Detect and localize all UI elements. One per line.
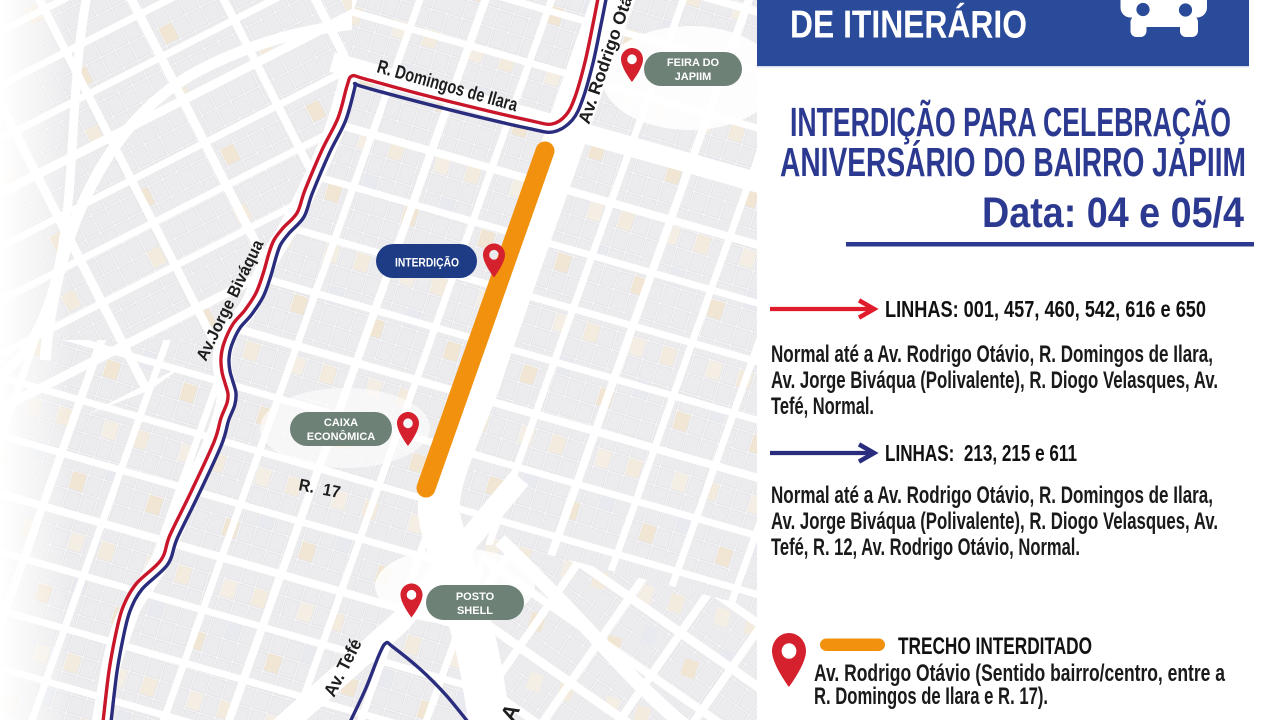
svg-text:ECONÔMICA: ECONÔMICA: [307, 430, 376, 443]
svg-text:ANIVERSÁRIO DO BAIRRO JAPIIM: ANIVERSÁRIO DO BAIRRO JAPIIM: [780, 139, 1246, 185]
svg-text:Tefé, R. 12, Av. Rodrigo Otávi: Tefé, R. 12, Av. Rodrigo Otávio, Normal.: [771, 534, 1080, 561]
svg-text:Normal até a Av. Rodrigo Otávi: Normal até a Av. Rodrigo Otávio, R. Domi…: [771, 341, 1213, 368]
svg-text:Av. Jorge Biváqua (Polivalente: Av. Jorge Biváqua (Polivalente), R. Diog…: [771, 367, 1218, 394]
svg-text:R. Domingos de Ilara e R. 17).: R. Domingos de Ilara e R. 17).: [814, 683, 1048, 710]
svg-text:JAPIIM: JAPIIM: [675, 71, 712, 83]
svg-text:TRECHO INTERDITADO: TRECHO INTERDITADO: [898, 633, 1092, 660]
svg-text:Av. Jorge Biváqua (Polivalente: Av. Jorge Biváqua (Polivalente), R. Diog…: [771, 508, 1218, 535]
svg-text:Tefé, Normal.: Tefé, Normal.: [771, 393, 874, 420]
svg-text:SHELL: SHELL: [457, 605, 493, 617]
svg-text:Data: 04 e 05/4: Data: 04 e 05/4: [982, 189, 1244, 237]
svg-text:LINHAS: 001, 457, 460, 542, 61: LINHAS: 001, 457, 460, 542, 616 e 650: [885, 296, 1206, 322]
svg-text:Normal até a Av. Rodrigo Otávi: Normal até a Av. Rodrigo Otávio, R. Domi…: [771, 482, 1213, 509]
svg-text:POSTO: POSTO: [456, 591, 495, 603]
svg-text:CAIXA: CAIXA: [324, 417, 358, 429]
svg-text:INTERDIÇÃO: INTERDIÇÃO: [395, 255, 459, 270]
svg-text:LINHAS: 213, 215 e 611: LINHAS: 213, 215 e 611: [885, 440, 1077, 466]
svg-text:FEIRA DO: FEIRA DO: [667, 57, 720, 69]
svg-text:DE ITINERÁRIO: DE ITINERÁRIO: [790, 3, 1027, 47]
